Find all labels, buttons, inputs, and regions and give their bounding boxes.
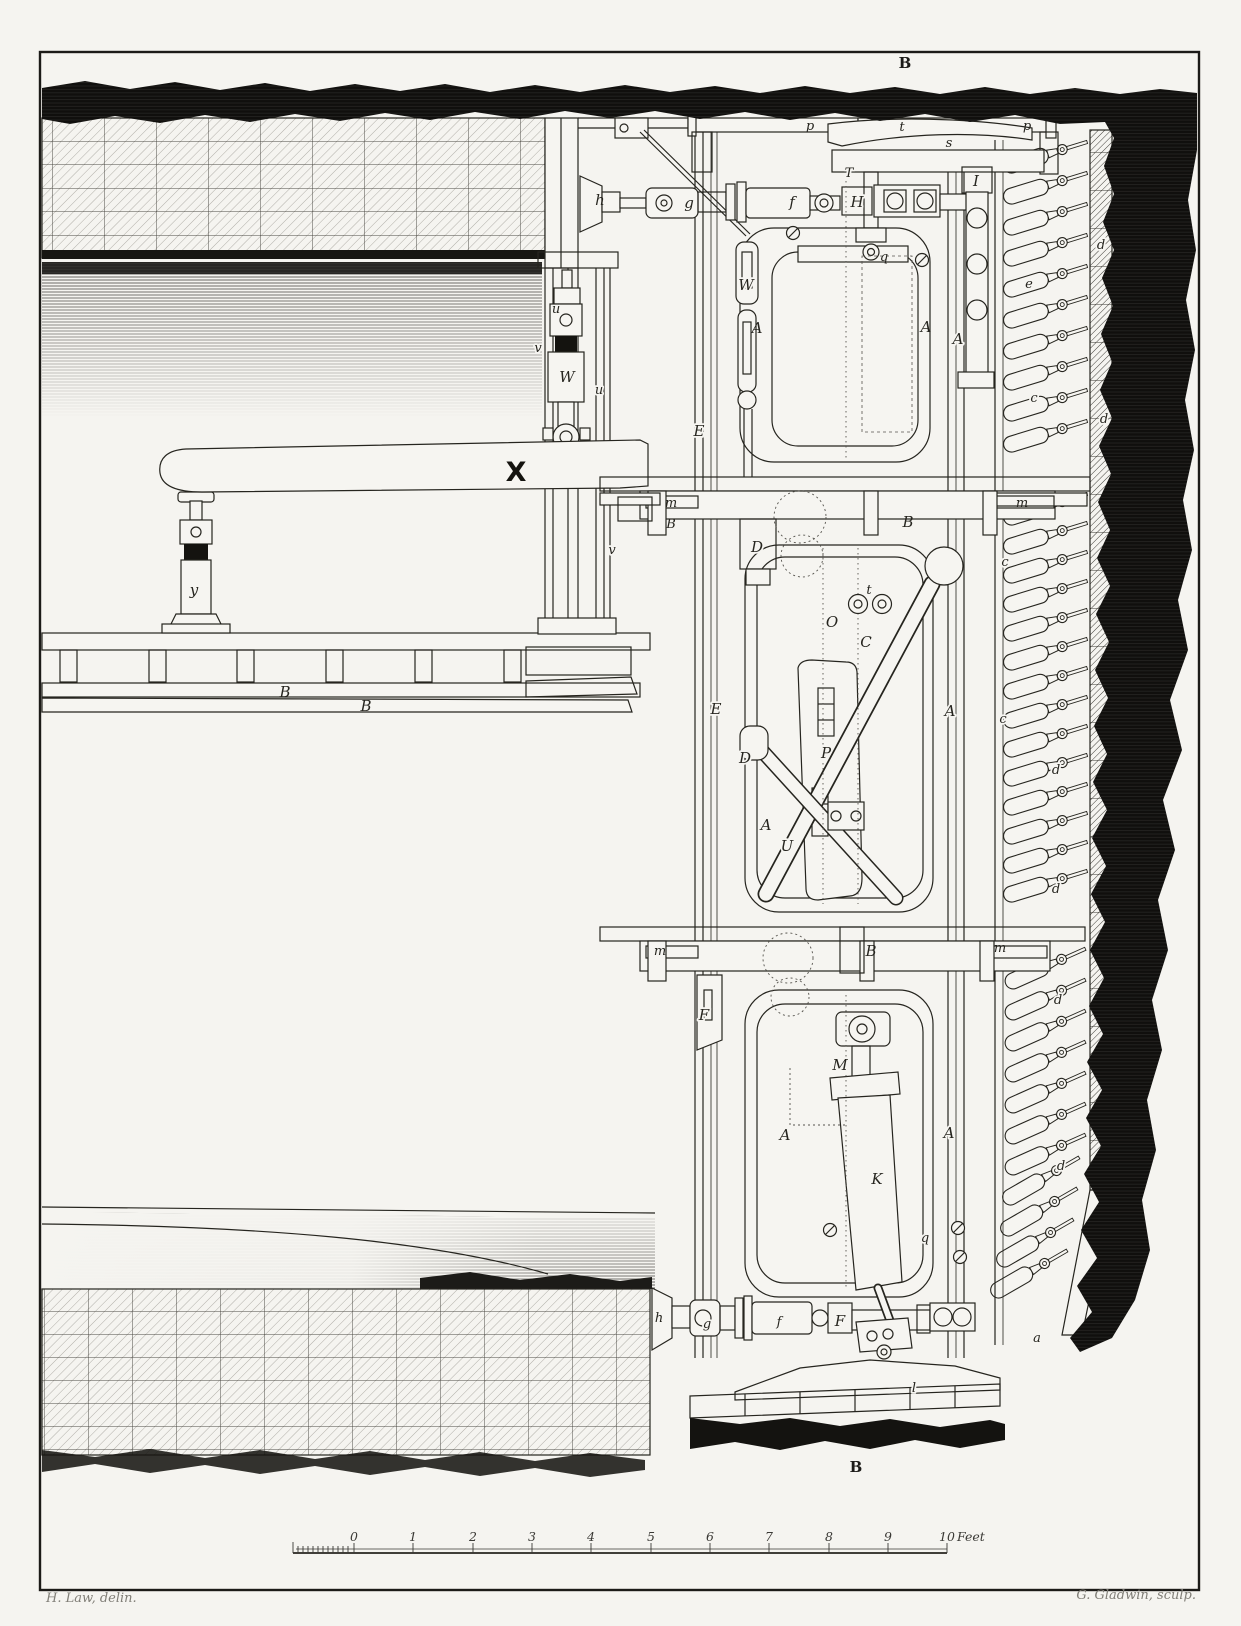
label-D-joint: D — [738, 749, 751, 767]
label-d1: d — [1097, 238, 1105, 253]
label-E2: E — [710, 700, 722, 718]
label-C-mid: C — [860, 633, 872, 651]
label-A-low-left: A — [778, 1126, 791, 1144]
scale-unit: Feet — [956, 1529, 986, 1544]
scale-tick-10: 10 — [939, 1529, 955, 1544]
label-e-right: e — [1025, 277, 1033, 292]
label-t-mid: t — [866, 583, 872, 598]
label-d2: d — [1100, 412, 1108, 427]
label-F-lower: F — [834, 1312, 846, 1330]
label-F-bracket: F — [698, 1006, 710, 1024]
label-g-upper: g — [684, 194, 694, 212]
shading-under-wall — [42, 262, 542, 418]
label-m-floor1-right: m — [1016, 496, 1028, 511]
label-h-lower: h — [655, 1311, 663, 1326]
scale-tick-6: 6 — [706, 1529, 714, 1544]
press-plate — [832, 150, 1044, 172]
scale-tick-4: 4 — [586, 1529, 595, 1544]
label-v1: v — [534, 341, 542, 356]
label-p-right: p — [1023, 119, 1032, 134]
label-B-floor1-left: B — [665, 517, 676, 532]
credit-draughtsman: H. Law, delin. — [45, 1591, 137, 1606]
label-A-mid-right: A — [943, 702, 956, 720]
label-A-right: A — [951, 330, 964, 348]
scale-tick-7: 7 — [765, 1529, 773, 1544]
scale-tick-9: 9 — [884, 1529, 892, 1544]
label-m-floor2-left: m — [654, 944, 666, 959]
label-d6: d — [1057, 1159, 1065, 1174]
label-X-stage: X — [506, 457, 527, 488]
scale-tick-8: 8 — [825, 1529, 833, 1544]
label-B-deck2: B — [359, 697, 371, 715]
label-h-upper: h — [595, 191, 605, 209]
label-u1: u — [552, 302, 560, 317]
section-mark-top: B — [899, 54, 912, 72]
label-O-mid: O — [826, 613, 838, 631]
label-c3: c — [999, 712, 1007, 727]
label-p-left: p — [806, 119, 815, 134]
shield-section-drawing: 0 1 2 3 4 5 6 7 8 9 10 Feet H. Law, deli… — [0, 0, 1241, 1626]
label-t-shoe: t — [899, 120, 905, 135]
scale-tick-5: 5 — [647, 1529, 655, 1544]
label-W-jack: W — [559, 368, 576, 386]
scale-tick-1: 1 — [409, 1529, 417, 1544]
scale-tick-0: 0 — [350, 1529, 358, 1544]
label-v2: v — [608, 543, 616, 558]
label-l-foot: l — [912, 1381, 916, 1396]
bolt-plate — [828, 802, 864, 830]
label-d5: d — [1054, 993, 1062, 1008]
invert-water-and-floor — [42, 1207, 655, 1477]
label-M-screw: M — [831, 1056, 848, 1074]
label-d4: d — [1052, 882, 1060, 897]
label-m-floor2-right: m — [994, 941, 1006, 956]
label-B-deck1: B — [278, 683, 290, 701]
scale-tick-2: 2 — [468, 1529, 477, 1544]
scale-tick-3: 3 — [528, 1529, 536, 1544]
label-E1: E — [693, 422, 705, 440]
label-U-mid: U — [781, 837, 795, 855]
label-T-upper: T — [845, 166, 855, 181]
label-A-upper-right: A — [919, 318, 932, 336]
label-c2: c — [1001, 555, 1009, 570]
label-q-lower: q — [921, 1231, 929, 1246]
label-g-lower: g — [703, 1317, 711, 1332]
label-H-upper: H — [849, 193, 864, 211]
ball-joint — [925, 547, 963, 585]
wall-shadow — [42, 250, 545, 259]
brick-wall — [42, 118, 578, 268]
stage-plank-X — [160, 440, 648, 492]
label-A-upper-left: A — [750, 319, 763, 337]
label-q-upper: q — [880, 250, 888, 265]
label-a-foot: a — [1033, 1331, 1041, 1346]
label-I-bar: I — [972, 172, 980, 190]
label-B-floor1-right: B — [901, 513, 913, 531]
section-mark-bottom: B — [850, 1458, 863, 1476]
upper-cell — [736, 228, 930, 477]
label-W-link: W — [738, 276, 755, 294]
label-c1: c — [1030, 391, 1038, 406]
label-d3: d — [1052, 763, 1060, 778]
credit-engraver: G. Gladwin, sculp. — [1076, 1588, 1196, 1603]
label-y-prop: y — [189, 581, 199, 599]
label-K-jack: K — [870, 1170, 883, 1188]
label-A-mid-left: A — [759, 816, 772, 834]
label-P-mid: P — [820, 744, 832, 762]
label-u2: u — [595, 383, 603, 398]
label-D-block: D — [750, 538, 763, 556]
label-B-floor2: B — [864, 942, 876, 960]
label-m-floor1-left: m — [665, 496, 677, 511]
label-s-top: s — [946, 136, 953, 151]
engraved-plate: 0 1 2 3 4 5 6 7 8 9 10 Feet H. Law, deli… — [0, 0, 1241, 1626]
label-A-low-right: A — [942, 1124, 955, 1142]
